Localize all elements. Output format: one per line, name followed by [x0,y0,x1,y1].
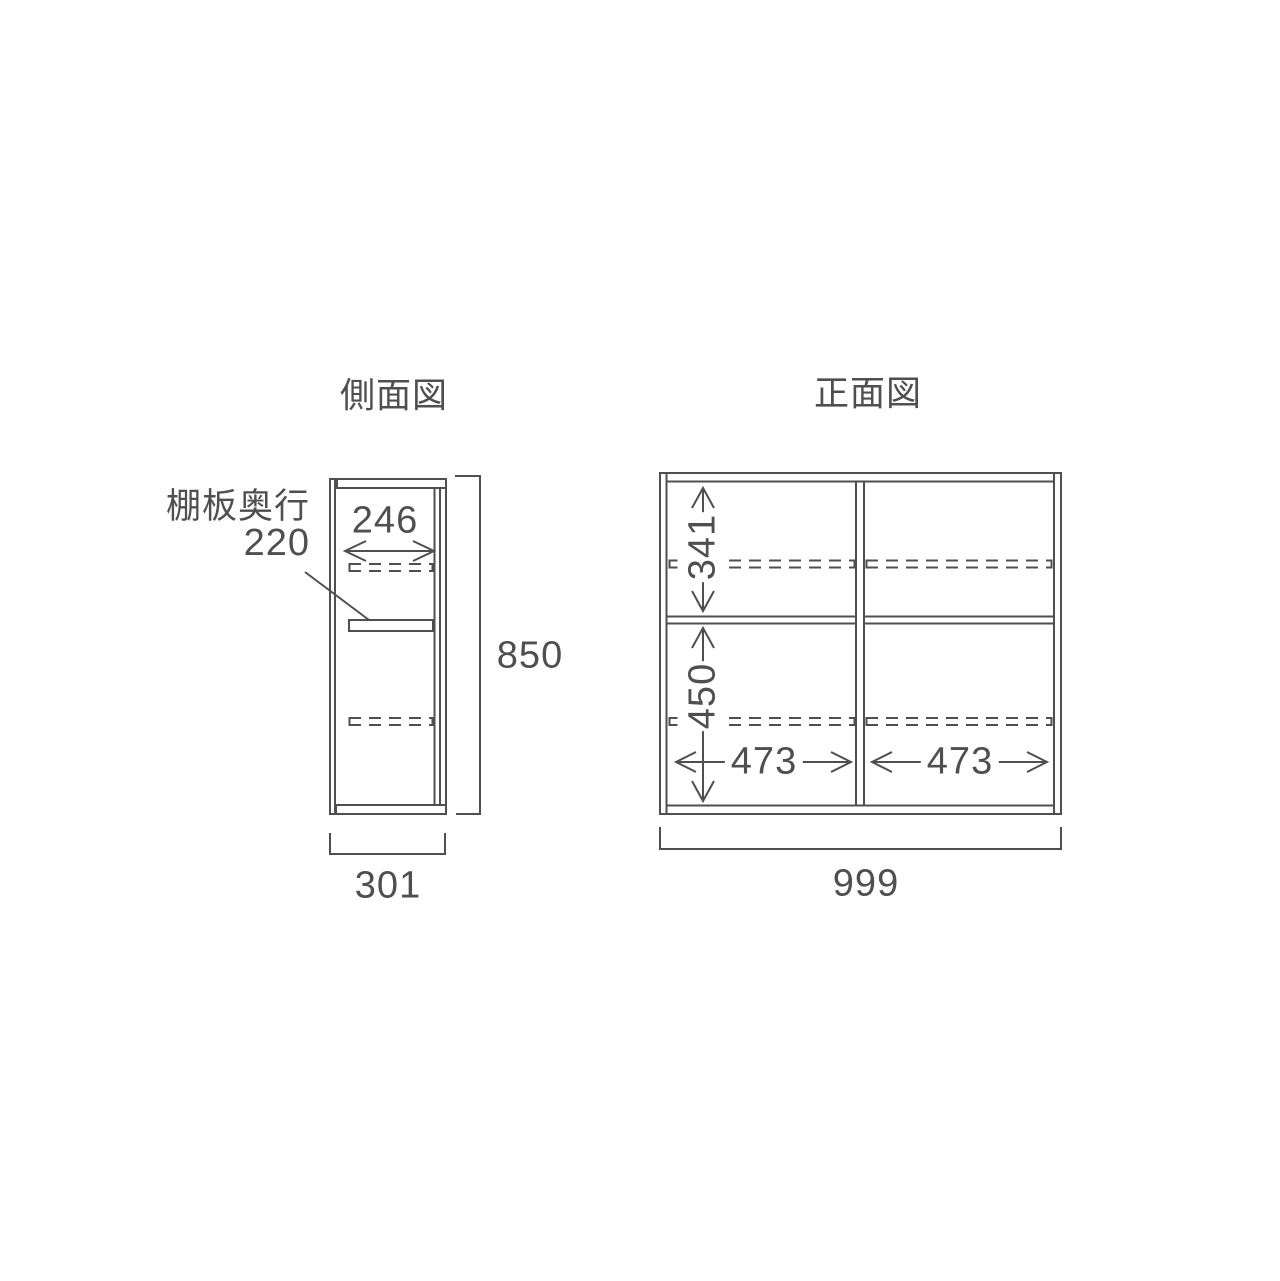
side-left-panel [330,479,335,814]
shelf-depth-leader-line [305,572,369,620]
side-adjustable-shelf-upper [349,563,433,572]
front-dim-upper-height-value: 341 [678,512,729,582]
side-adjustable-shelf-lower [349,717,433,726]
front-dim-width-bracket [660,827,1061,849]
shelf-depth-label-value: 220 [166,526,310,560]
side-dim-inner-depth-arrow [345,541,434,561]
side-dim-height-bracket [455,476,480,814]
front-dim-left-width-value: 473 [725,741,803,784]
side-front-edge-lines [435,488,447,805]
front-dim-width-value: 999 [833,863,899,906]
front-view-title: 正面図 [814,366,922,417]
shelf-depth-label-text: 棚板奥行 [166,488,310,526]
front-dim-lower-height-value: 450 [678,661,729,731]
side-dim-depth-bracket [330,833,445,854]
side-bottom-panel [336,805,446,814]
side-dim-inner-depth-value: 246 [352,500,418,543]
front-dim-right-width-value: 473 [921,741,999,784]
diagram-linework [0,0,1280,1281]
front-center-divider [856,482,864,806]
side-fixed-shelf [349,620,433,631]
front-adjustable-shelf-top-right [866,560,1052,569]
side-view-title: 側面図 [340,368,448,419]
front-fixed-shelf [667,617,1055,624]
front-adjustable-shelf-bottom-right [866,717,1052,726]
side-dim-depth-value: 301 [355,865,421,908]
side-dim-height-value: 850 [497,635,563,678]
shelf-depth-label: 棚板奥行 220 [166,488,310,560]
furniture-dimension-diagram: 側面図 正面図 棚板奥行 220 246 850 301 341 450 473… [0,0,1280,1281]
side-top-panel [337,479,446,488]
